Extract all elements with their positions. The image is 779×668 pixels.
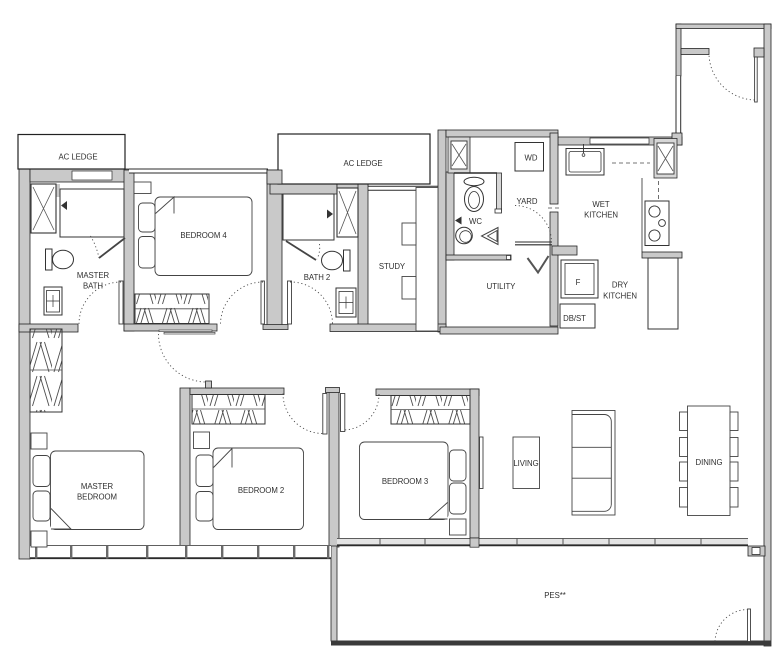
svg-text:BATH 2: BATH 2: [304, 273, 330, 282]
svg-text:F: F: [576, 278, 581, 287]
svg-text:BEDROOM 3: BEDROOM 3: [382, 477, 428, 486]
svg-text:KITCHEN: KITCHEN: [603, 292, 637, 301]
svg-text:WC: WC: [469, 217, 482, 226]
svg-text:DRY: DRY: [612, 281, 629, 290]
svg-text:STUDY: STUDY: [379, 262, 406, 271]
svg-text:BEDROOM 4: BEDROOM 4: [180, 231, 227, 240]
svg-text:AC LEDGE: AC LEDGE: [343, 159, 382, 168]
svg-text:UTILITY: UTILITY: [487, 282, 517, 291]
svg-text:AC LEDGE: AC LEDGE: [58, 153, 97, 162]
svg-text:YARD: YARD: [517, 197, 538, 206]
svg-text:BATH: BATH: [83, 282, 103, 291]
svg-text:DINING: DINING: [696, 458, 723, 467]
svg-text:KITCHEN: KITCHEN: [584, 211, 618, 220]
svg-text:BEDROOM 2: BEDROOM 2: [238, 486, 284, 495]
svg-text:MASTER: MASTER: [81, 482, 114, 491]
svg-text:MASTER: MASTER: [77, 271, 110, 280]
svg-text:BEDROOM: BEDROOM: [77, 493, 117, 502]
svg-text:WET: WET: [592, 200, 609, 209]
svg-text:PES**: PES**: [544, 591, 565, 600]
svg-text:DB/ST: DB/ST: [563, 314, 586, 323]
svg-text:WD: WD: [525, 154, 538, 163]
svg-text:LIVING: LIVING: [513, 459, 538, 468]
